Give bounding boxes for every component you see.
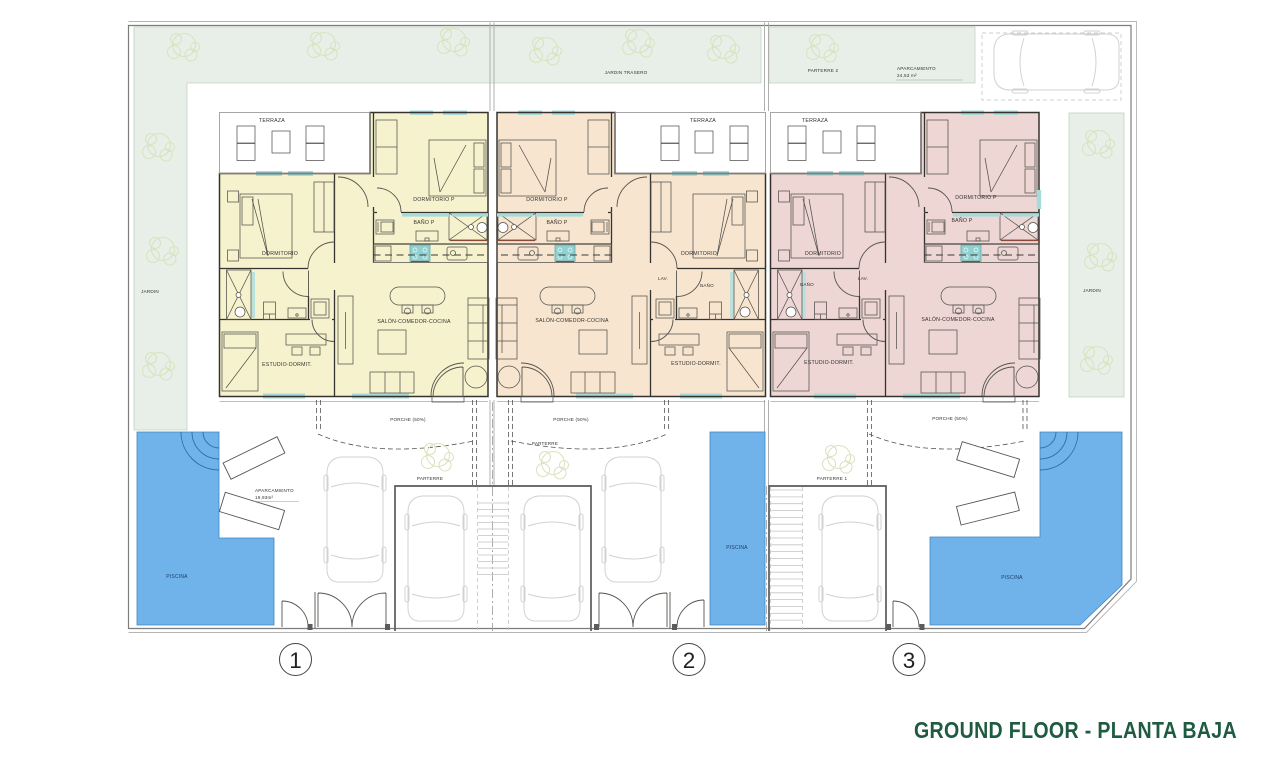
svg-text:GROUND FLOOR - PLANTA BAJA: GROUND FLOOR - PLANTA BAJA: [914, 717, 1237, 743]
svg-text:TERRAZA: TERRAZA: [259, 118, 285, 124]
svg-text:APARCAMIENTO: APARCAMIENTO: [897, 66, 936, 71]
svg-text:SALÓN-COMEDOR-COCINA: SALÓN-COMEDOR-COCINA: [377, 318, 451, 325]
svg-text:3: 3: [903, 648, 916, 673]
svg-text:JARDIN: JARDIN: [1083, 288, 1101, 293]
svg-text:TERRAZA: TERRAZA: [690, 118, 716, 124]
svg-text:DORMITORIO P: DORMITORIO P: [955, 195, 997, 201]
svg-text:APARCAMIENTO: APARCAMIENTO: [255, 488, 294, 493]
svg-text:BAÑO: BAÑO: [800, 281, 814, 287]
svg-text:SALÓN-COMEDOR-COCINA: SALÓN-COMEDOR-COCINA: [535, 317, 609, 324]
svg-text:ESTUDIO-DORMIT.: ESTUDIO-DORMIT.: [804, 360, 854, 366]
svg-text:DORMITORIO: DORMITORIO: [681, 251, 717, 257]
svg-text:BAÑO P: BAÑO P: [546, 219, 567, 226]
svg-text:DORMITORIO P: DORMITORIO P: [413, 197, 455, 203]
svg-text:BAÑO P: BAÑO P: [951, 217, 972, 224]
svg-text:PARTERRE: PARTERRE: [532, 441, 558, 446]
svg-text:PARTERRE 2: PARTERRE 2: [808, 68, 839, 73]
svg-text:ESTUDIO-DORMIT.: ESTUDIO-DORMIT.: [262, 362, 312, 368]
svg-text:PORCHE (50%): PORCHE (50%): [553, 417, 589, 422]
svg-text:ESTUDIO-DORMIT.: ESTUDIO-DORMIT.: [671, 361, 721, 367]
svg-text:BAÑO P: BAÑO P: [413, 219, 434, 226]
svg-text:SALÓN-COMEDOR-COCINA: SALÓN-COMEDOR-COCINA: [921, 316, 995, 323]
svg-text:PARTERRE: PARTERRE: [417, 476, 443, 481]
svg-text:DORMITORIO: DORMITORIO: [262, 251, 298, 257]
svg-text:19,93m²: 19,93m²: [255, 495, 274, 500]
svg-text:PORCHE (50%): PORCHE (50%): [932, 416, 968, 421]
svg-text:PARTERRE 1: PARTERRE 1: [817, 476, 848, 481]
svg-text:24,53 m²: 24,53 m²: [897, 73, 917, 78]
svg-text:PORCHE (50%): PORCHE (50%): [390, 417, 426, 422]
svg-text:PISCINA: PISCINA: [726, 545, 748, 551]
svg-text:PISCINA: PISCINA: [1001, 575, 1023, 581]
svg-text:PISCINA: PISCINA: [166, 574, 188, 580]
svg-text:JARDIN TRASERO: JARDIN TRASERO: [605, 70, 648, 75]
svg-text:JARDIN: JARDIN: [141, 289, 159, 294]
svg-text:1: 1: [289, 648, 302, 673]
svg-text:DORMITORIO: DORMITORIO: [805, 251, 841, 257]
svg-text:DORMITORIO P: DORMITORIO P: [526, 197, 568, 203]
svg-text:2: 2: [683, 648, 696, 673]
svg-text:BAÑO: BAÑO: [700, 282, 714, 288]
svg-text:LAV.: LAV.: [658, 276, 668, 281]
svg-text:LAV.: LAV.: [858, 276, 868, 281]
svg-text:TERRAZA: TERRAZA: [802, 118, 828, 124]
